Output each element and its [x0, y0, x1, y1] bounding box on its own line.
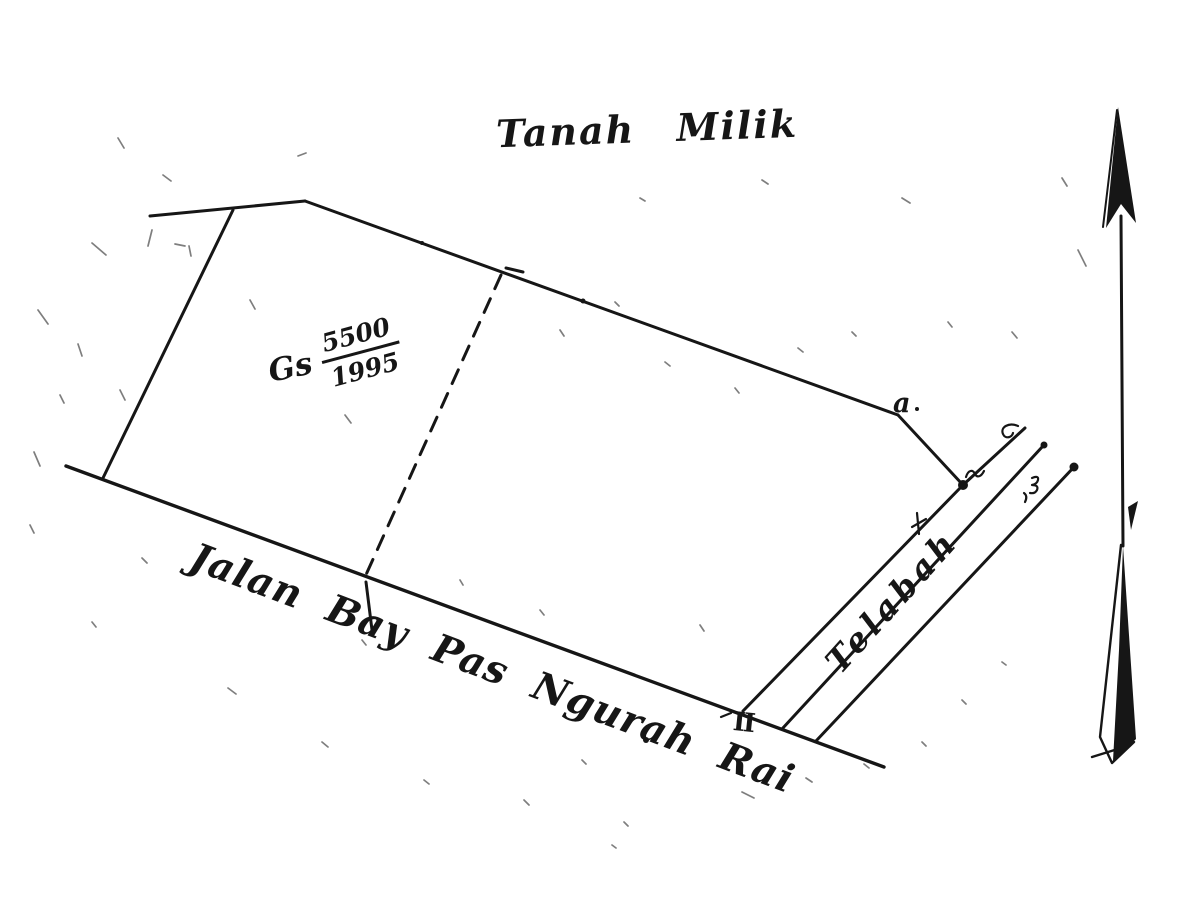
- channel-line-outer: [816, 467, 1074, 741]
- parcel-corner-cut-edge: [898, 415, 963, 485]
- comma-mark: [1024, 493, 1026, 502]
- ink-dot: [581, 299, 586, 304]
- corner-point-label: a: [893, 388, 911, 419]
- parcel-registration-prefix: Gs: [265, 345, 315, 389]
- marker-dash: [721, 713, 731, 717]
- channel-lines: [782, 442, 1079, 742]
- corner-junction-blob: [958, 480, 968, 490]
- road-line: [66, 466, 884, 767]
- north-arrow-shaft-blob: [1128, 501, 1138, 530]
- corner-label-dot: [915, 407, 919, 411]
- scribble-mark: [1030, 477, 1038, 493]
- junction-squiggle: [966, 471, 984, 477]
- north-arrow-shaft: [1121, 216, 1123, 546]
- channel-line-end-dot: [1070, 463, 1079, 472]
- scanned-land-sketch: Tanah Milik Gs 5500 1995 a II Jalan Bay …: [0, 0, 1200, 900]
- parcel-top-left-edge: [150, 201, 305, 216]
- scan-noise-speckles: [30, 138, 1086, 848]
- north-arrow-icon: [1092, 107, 1138, 763]
- parcel-left-edge: [103, 210, 233, 478]
- ink-dot: [420, 241, 424, 245]
- divider-top-dash: [506, 268, 523, 272]
- channel-line-end-dot: [1041, 442, 1048, 449]
- parcel-top-edge: [305, 201, 898, 415]
